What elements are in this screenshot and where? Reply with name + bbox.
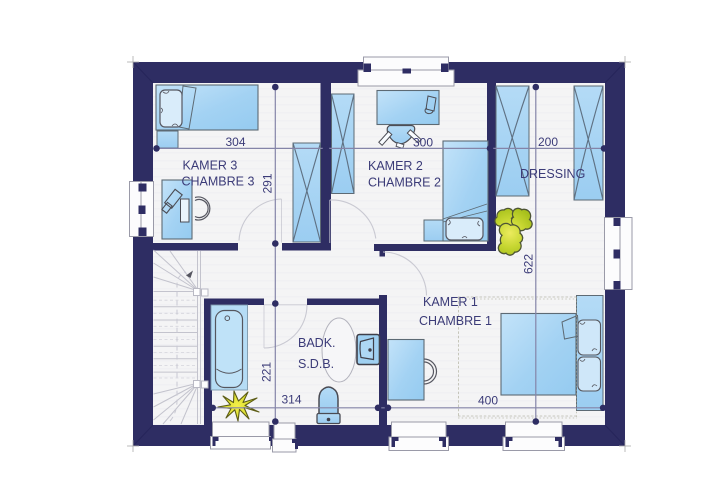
svg-text:400: 400 bbox=[478, 394, 498, 408]
svg-text:S.D.B.: S.D.B. bbox=[298, 357, 334, 371]
svg-text:221: 221 bbox=[260, 362, 274, 382]
svg-text:300: 300 bbox=[413, 136, 433, 150]
svg-text:KAMER 1: KAMER 1 bbox=[423, 295, 478, 309]
svg-text:304: 304 bbox=[225, 135, 245, 149]
svg-text:DRESSING: DRESSING bbox=[520, 167, 585, 181]
svg-text:200: 200 bbox=[538, 135, 558, 149]
svg-text:291: 291 bbox=[261, 173, 275, 193]
svg-text:CHAMBRE 2: CHAMBRE 2 bbox=[368, 176, 441, 190]
svg-text:CHAMBRE 1: CHAMBRE 1 bbox=[419, 314, 492, 328]
svg-text:314: 314 bbox=[281, 393, 301, 407]
svg-text:622: 622 bbox=[522, 254, 536, 274]
svg-text:KAMER 2: KAMER 2 bbox=[368, 159, 423, 173]
svg-text:CHAMBRE 3: CHAMBRE 3 bbox=[182, 175, 255, 189]
svg-text:BADK.: BADK. bbox=[298, 336, 336, 350]
svg-text:KAMER 3: KAMER 3 bbox=[183, 159, 238, 173]
